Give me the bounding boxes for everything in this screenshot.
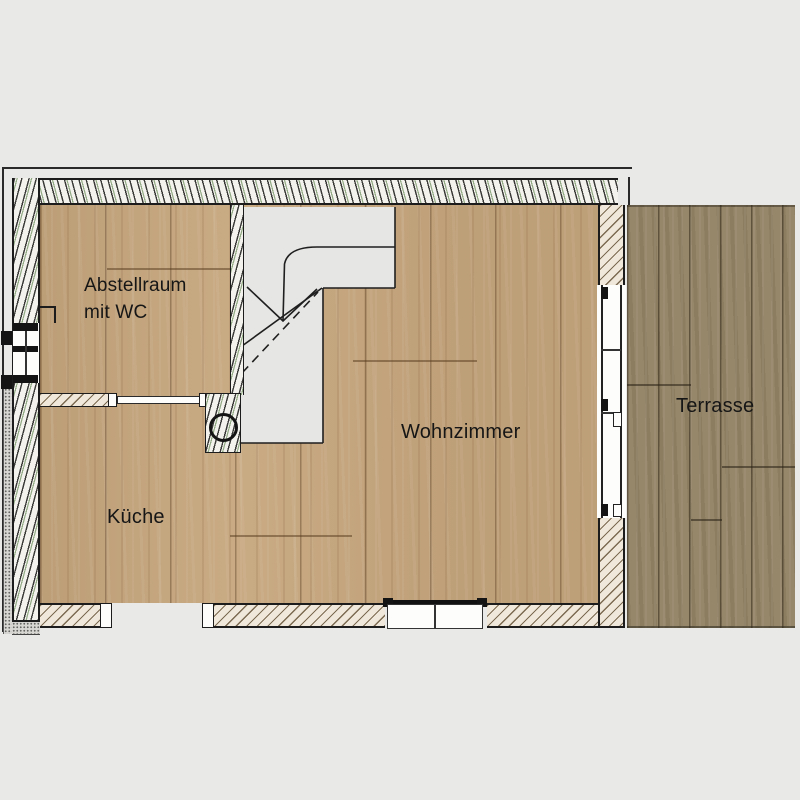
wall-exterior-bottom-c	[487, 603, 598, 628]
wall-reveal-step	[54, 306, 56, 323]
wall-exterior-top	[12, 178, 618, 205]
window-right-frame-right	[620, 285, 622, 518]
wall-exterior-left-upper	[12, 178, 40, 323]
wall-abstellraum-bottom	[40, 393, 108, 407]
window-right-block-bottom	[601, 504, 608, 516]
room-label-abstellraum-line1: Abstellraum	[84, 272, 187, 299]
door-leaf-abstellraum	[117, 396, 200, 404]
outer-window-jamb-upper	[1, 331, 12, 345]
wall-exterior-right-lower	[598, 518, 625, 628]
chimney-pipe-circle	[209, 413, 238, 442]
stairs-area-lower	[241, 288, 323, 443]
room-label-terrasse: Terrasse	[676, 393, 754, 420]
outline-right-stub	[628, 177, 630, 205]
window-left-bottom-jamb	[13, 375, 38, 383]
wall-exterior-bottom-a	[40, 603, 100, 628]
window-right-connector-box	[613, 412, 622, 427]
wall-exterior-bottom-b	[214, 603, 385, 628]
window-right-block-mid	[601, 399, 608, 411]
plank-joint	[230, 535, 352, 537]
window-right-mullion	[601, 349, 621, 351]
outline-top-line	[2, 167, 632, 169]
door-jamb	[100, 603, 112, 628]
window-right-glazing	[597, 285, 626, 518]
window-left-top-jamb	[13, 323, 38, 331]
window-left	[12, 323, 40, 383]
stipple-strip-left	[3, 388, 12, 634]
terrace-plank-joint	[722, 466, 795, 468]
floor-plan-canvas: Abstellraum mit WC Küche Wohnzimmer Terr…	[0, 0, 800, 800]
window-bottom-divider	[434, 604, 436, 629]
window-left-glass-line	[25, 331, 27, 375]
room-label-kueche: Küche	[107, 504, 165, 531]
plank-joint	[353, 360, 477, 362]
door-jamb	[108, 393, 117, 407]
window-right-connector-box	[613, 504, 622, 517]
stairs-area-upper	[241, 207, 395, 288]
wall-exterior-right-upper	[598, 205, 625, 285]
plank-joint	[107, 268, 230, 270]
room-label-wohnzimmer: Wohnzimmer	[401, 419, 520, 446]
room-label-abstellraum: Abstellraum mit WC	[84, 272, 187, 326]
window-right-block-top	[601, 287, 608, 299]
terrace-plank-joint	[691, 519, 722, 521]
chimney-shaft	[205, 393, 241, 453]
door-jamb	[202, 603, 214, 628]
wall-abstellraum-right	[230, 205, 244, 395]
window-bottom	[383, 598, 487, 631]
outer-window-jamb-lower	[1, 375, 12, 389]
terrace-plank-joint	[627, 384, 691, 386]
room-label-abstellraum-line2: mit WC	[84, 299, 187, 326]
wall-exterior-left-lower	[12, 383, 40, 622]
stipple-strip-bottom-left	[12, 622, 40, 635]
